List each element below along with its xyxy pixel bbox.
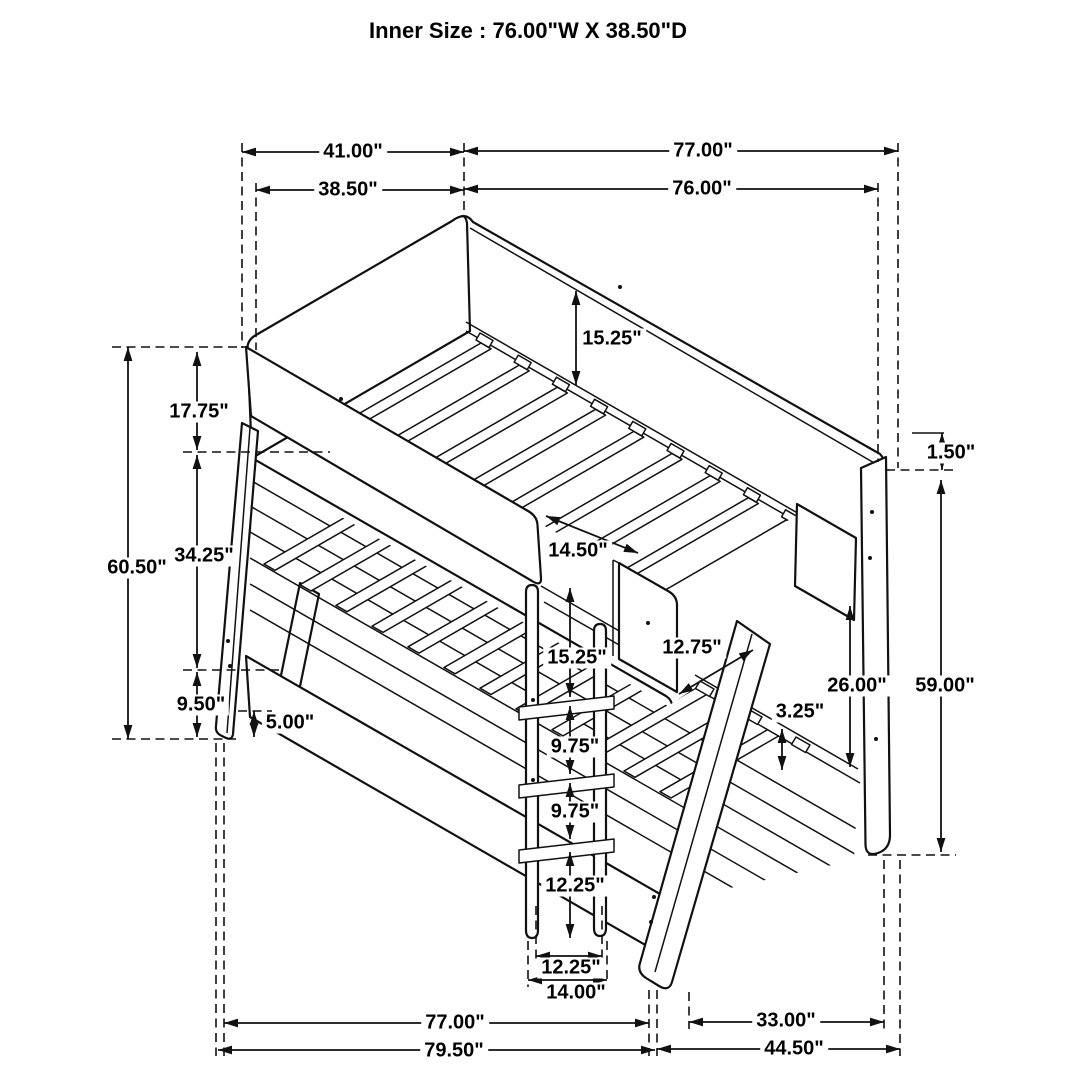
dim-label-bottom-77: 77.00" bbox=[421, 1013, 489, 1034]
dim-label-ladder-9-75-b: 9.75" bbox=[547, 802, 603, 823]
bed-line-drawing bbox=[0, 0, 1080, 1080]
ladder-left-rail bbox=[526, 585, 538, 938]
dim-label-top-77: 77.00" bbox=[669, 141, 737, 162]
upper-bunk bbox=[246, 216, 886, 706]
dim-label-headboard-17-75: 17.75" bbox=[165, 402, 233, 423]
dim-label-right-26-00: 26.00" bbox=[823, 676, 891, 697]
rear-right-leg bbox=[861, 457, 890, 854]
right-end bbox=[795, 457, 890, 854]
right-guard-stub bbox=[795, 504, 856, 620]
bunk-bed-dimension-diagram: Inner Size : 76.00"W X 38.50"D 41.00" 77… bbox=[0, 0, 1080, 1080]
dim-label-right-1-50: 1.50" bbox=[923, 443, 979, 464]
dim-label-ladder-15-25: 15.25" bbox=[543, 648, 611, 669]
dim-label-opening-14-50: 14.50" bbox=[544, 541, 612, 562]
dim-label-left-9-50: 9.50" bbox=[173, 695, 229, 716]
back-rail-top-edge bbox=[463, 216, 884, 472]
dim-label-left-60-50: 60.50" bbox=[103, 558, 171, 579]
dim-label-bottom-33: 33.00" bbox=[752, 1011, 820, 1032]
dim-label-slat-3-25: 3.25" bbox=[772, 702, 828, 723]
back-rail-inner-edge bbox=[470, 228, 876, 464]
dim-label-top-38-5: 38.50" bbox=[314, 180, 382, 201]
dim-label-left-34-25: 34.25" bbox=[170, 546, 238, 567]
dim-label-rail-15-25: 15.25" bbox=[578, 329, 646, 350]
dim-label-top-41: 41.00" bbox=[319, 142, 387, 163]
dim-label-bottom-79-5: 79.50" bbox=[420, 1041, 488, 1062]
dim-label-top-76: 76.00" bbox=[668, 179, 736, 200]
dim-label-ladder-9-75-a: 9.75" bbox=[547, 737, 603, 758]
dim-label-bottom-44-5: 44.50" bbox=[760, 1039, 828, 1060]
dim-label-ladder-width-14-00: 14.00" bbox=[542, 983, 610, 1004]
dim-label-ladder-width-12-25: 12.25" bbox=[537, 958, 605, 979]
dim-label-opening-12-75: 12.75" bbox=[658, 638, 726, 659]
footboard-panel bbox=[619, 563, 677, 692]
dim-label-left-5-00: 5.00" bbox=[262, 713, 318, 734]
dim-label-right-59-00: 59.00" bbox=[911, 676, 979, 697]
diagram-title: Inner Size : 76.00"W X 38.50"D bbox=[369, 18, 687, 44]
dim-label-ladder-12-25: 12.25" bbox=[541, 876, 609, 897]
